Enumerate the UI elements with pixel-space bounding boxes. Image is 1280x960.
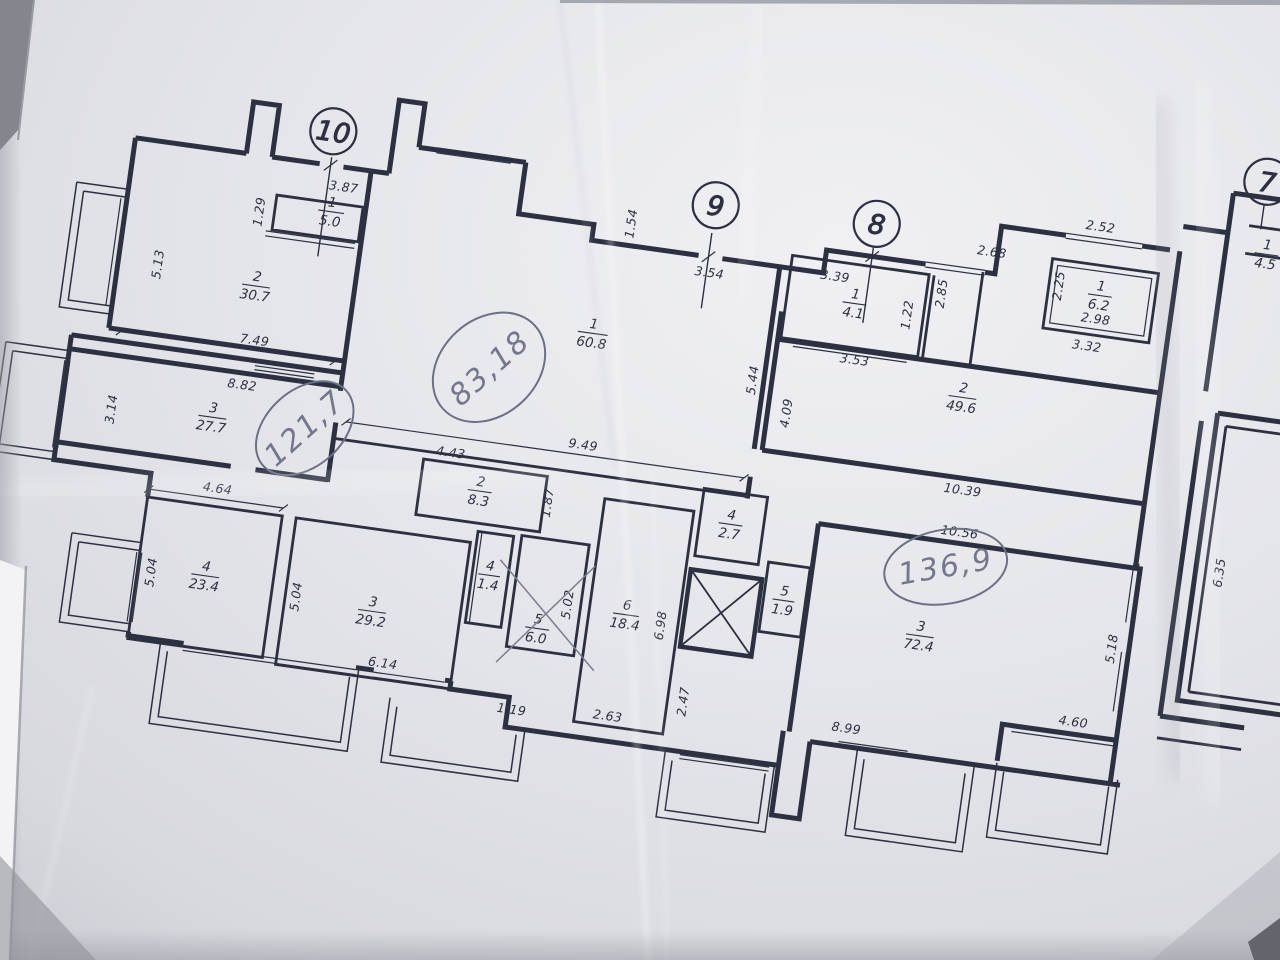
svg-text:4.1: 4.1 bbox=[841, 304, 865, 323]
floorplan-photo: 10 9 8 7 15.0 230.7 327.7 423.4 329.2 28… bbox=[0, 0, 1280, 960]
section-number: 10 bbox=[314, 115, 352, 150]
svg-text:2.7: 2.7 bbox=[717, 525, 741, 544]
svg-text:5.0: 5.0 bbox=[318, 212, 342, 231]
svg-text:4.5: 4.5 bbox=[1253, 255, 1277, 274]
svg-text:8.3: 8.3 bbox=[467, 492, 491, 511]
svg-text:1.4: 1.4 bbox=[476, 576, 500, 595]
svg-text:1.9: 1.9 bbox=[770, 601, 794, 620]
